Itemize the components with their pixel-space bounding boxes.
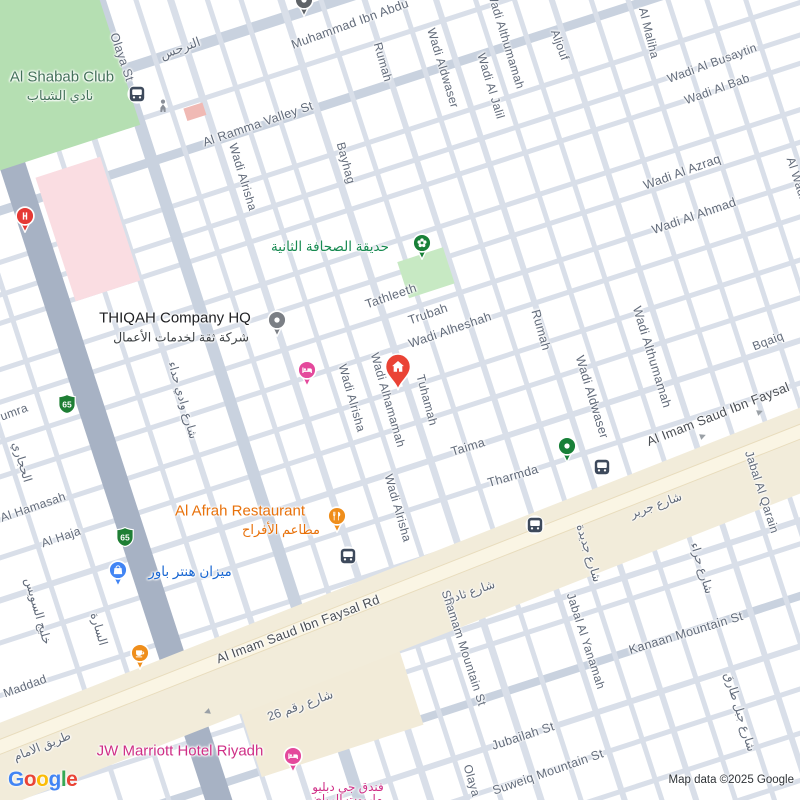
map-attribution: Map data ©2025 Google [669,774,794,786]
jw-marriott-marker[interactable] [282,746,304,773]
transit-station-imam-east[interactable] [592,457,612,477]
transit-icon [525,515,545,535]
selected-place-marker[interactable] [382,352,414,392]
poi-label-thiqah-hq-en[interactable]: THIQAH Company HQ [99,310,251,327]
park-marker[interactable] [411,233,433,260]
transit-station-olaya[interactable] [127,84,147,104]
poi-label-al-afrah-restaurant-en[interactable]: Al Afrah Restaurant [175,503,305,520]
route-shield-65-a: 65 [56,393,78,415]
tharmda-stop-marker[interactable] [556,436,578,463]
google-logo-letter: o [36,768,48,791]
coffee-marker[interactable] [129,643,151,670]
poi-label-mizan-hunter-power-ar[interactable]: ميزان هنتر باور [148,564,232,580]
dot-icon [274,317,279,322]
poi-label-thiqah-hq-ar[interactable]: شركة ثقة لخدمات الأعمال [113,330,249,345]
shopping-marker[interactable] [107,560,129,587]
transit-station-imam-mid[interactable] [525,515,545,535]
google-logo-letter: o [24,768,36,791]
svg-text:65: 65 [120,533,130,543]
pedestrian-icon [158,99,168,115]
map-canvas[interactable]: Olaya StMuhammad Ibn AbduالنرجسAl Ramma … [0,0,800,800]
poi-label-al-shabab-club-en[interactable]: Al Shabab Club [10,69,114,86]
pedestrian-icon [158,99,168,115]
restaurant-marker[interactable] [326,506,348,533]
poi-label-jw-marriott-en[interactable]: JW Marriott Hotel Riyadh [97,743,264,760]
svg-text:65: 65 [62,400,72,410]
hotel-marker[interactable] [296,360,318,387]
transit-icon [127,84,147,104]
google-logo-letter: g [49,768,61,791]
route-shield-icon: 65 [114,526,136,548]
poi-marker-partial[interactable] [293,0,315,17]
dot-icon [564,443,569,448]
route-shield-65-b: 65 [114,526,136,548]
transit-icon [338,546,358,566]
google-logo-letter: e [66,768,77,791]
poi-label-al-shabab-club-ar[interactable]: نادي الشباب [27,88,93,104]
google-logo[interactable]: Google [8,768,77,792]
hospital-marker[interactable] [14,206,36,233]
poi-label-al-afrah-restaurant-ar[interactable]: مطاعم الأفراح [242,522,320,538]
transit-station-alrisha[interactable] [338,546,358,566]
thiqah-marker[interactable] [266,310,288,337]
google-logo-letter: G [8,768,24,791]
transit-icon [592,457,612,477]
poi-label-sahafa-garden-ar[interactable]: حديقة الصحافة الثانية [271,239,389,255]
route-shield-icon: 65 [56,393,78,415]
poi-label-jw-marriott-ar2[interactable]: ماريوت الرياض [307,792,382,800]
